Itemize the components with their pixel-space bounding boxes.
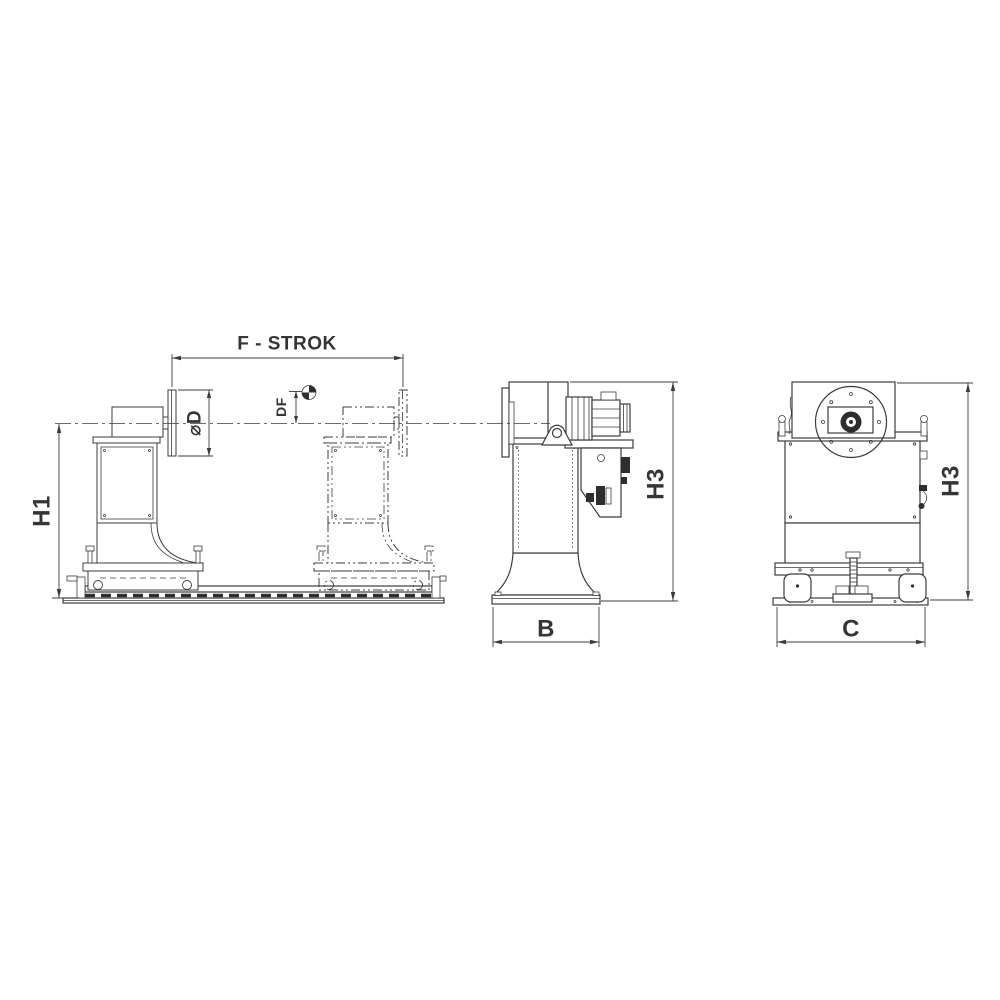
side-column-body <box>513 443 578 553</box>
dim-label-c: C <box>842 616 860 643</box>
dim-df: DF <box>273 386 316 424</box>
view-side <box>492 382 633 604</box>
dim-label-b: B <box>537 616 555 643</box>
dim-f-strok: F - STROK <box>172 334 403 388</box>
dim-label-h3-side: H3 <box>643 468 670 500</box>
dim-h1: H1 <box>29 424 81 598</box>
side-faceplate-edge <box>502 388 509 457</box>
column-phantom <box>314 390 434 590</box>
cg-quartered-circle-icon <box>302 386 316 400</box>
cable <box>789 397 791 434</box>
dim-label-h3-rear: H3 <box>938 465 965 497</box>
dim-label-f-strok: F - STROK <box>237 334 337 355</box>
dim-diameter-d: ⌀D <box>178 390 213 456</box>
dim-b: B <box>493 607 599 647</box>
jack-foot <box>833 594 872 602</box>
roller-left <box>784 574 811 602</box>
dim-label-df: DF <box>273 397 289 417</box>
roller-right <box>899 574 926 602</box>
view-rear <box>773 382 928 605</box>
dim-c: C <box>777 607 925 647</box>
dim-label-d: ⌀D <box>185 410 206 436</box>
gear-housing <box>566 397 592 440</box>
side-base-plate <box>492 595 600 604</box>
technical-drawing: F - STROK ⌀D DF <box>0 0 1000 1000</box>
dim-label-h1: H1 <box>29 495 56 527</box>
control-box <box>581 448 621 517</box>
rear-carriage-plate <box>775 563 923 575</box>
